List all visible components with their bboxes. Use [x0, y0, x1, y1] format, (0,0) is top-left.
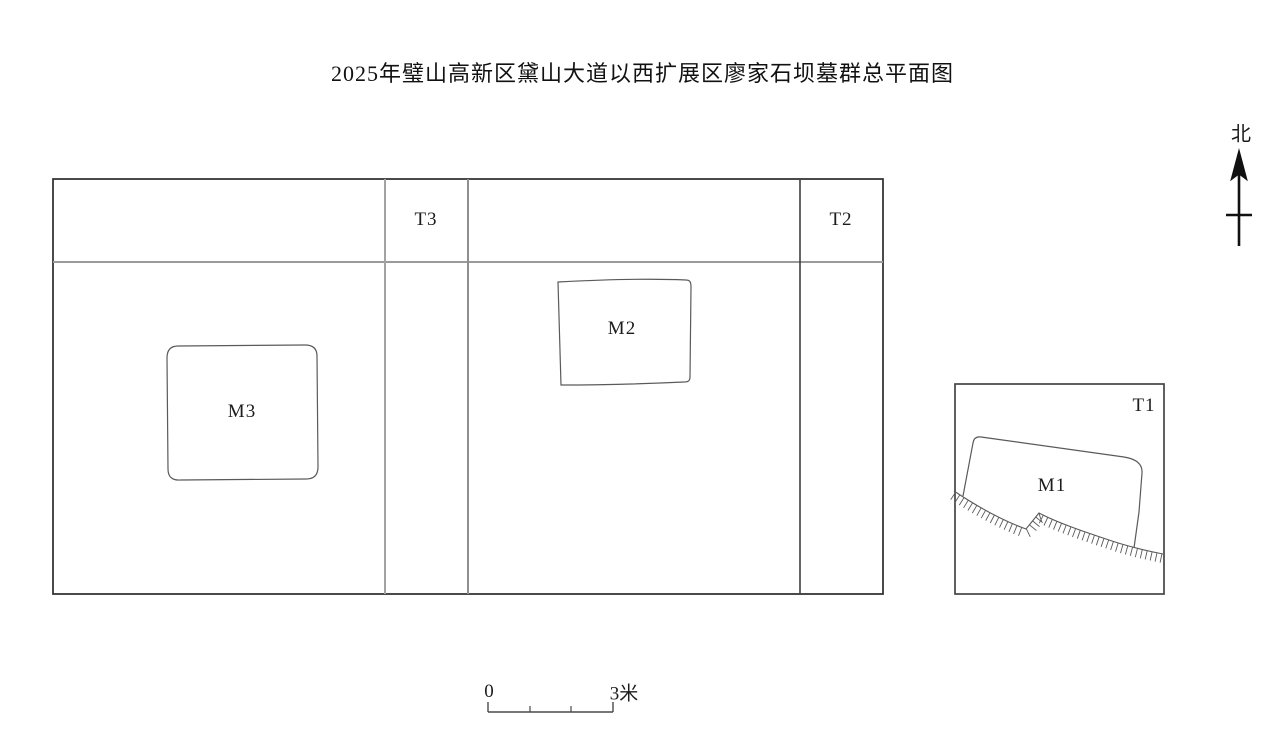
scarp-hachure-tick	[1150, 552, 1152, 561]
scarp-line	[954, 491, 1163, 554]
tomb-m3-label: M3	[228, 401, 256, 423]
scarp-hachure-tick	[1004, 522, 1008, 530]
tomb-m2-label: M2	[608, 318, 636, 340]
scarp-hachure-tick	[1155, 553, 1157, 562]
scarp-hachure-tick	[1073, 529, 1076, 538]
scarp-hachure-tick	[1026, 529, 1030, 537]
scarp-hachure-tick	[1049, 519, 1053, 527]
north-arrow	[1226, 150, 1252, 246]
scarp-hachure-tick	[1044, 517, 1048, 525]
trench-t3-label: T3	[414, 209, 437, 231]
scarp-hachure-tick	[1140, 550, 1142, 559]
scarp-hachure-tick	[1009, 524, 1013, 532]
site-plan-page: 2025年璧山高新区黛山大道以西扩展区廖家石坝墓群总平面图 北 T3 T2 T1…	[0, 0, 1285, 741]
scarp-hachure-tick	[1145, 551, 1147, 560]
scarp-hachure-tick	[1101, 538, 1104, 547]
scarp-hachure-tick	[1014, 526, 1017, 534]
scarp-hachure-tick	[968, 503, 973, 511]
scarp-hachure-tick	[1077, 530, 1080, 539]
scale-zero-label: 0	[484, 681, 494, 703]
scarp-hachure-tick	[1111, 542, 1114, 551]
scarp-hachure-tick	[1116, 543, 1119, 552]
scarp-hachure-tick	[1029, 525, 1036, 531]
scarp-hachure-tick	[964, 500, 969, 508]
scarp-hachure-tick	[981, 510, 985, 518]
scarp-hachure-tick	[1058, 523, 1061, 531]
scarp-hachure-tick	[1096, 537, 1099, 546]
trench-t1-label: T1	[1132, 395, 1155, 417]
scale-bar	[488, 702, 613, 712]
north-label: 北	[1231, 118, 1251, 147]
scarp-hachure-tick	[1087, 534, 1090, 543]
scarp-hachure-tick	[1125, 546, 1127, 555]
scarp-hachure-tick	[986, 513, 990, 521]
scarp-hachure-tick	[1054, 521, 1057, 529]
scarp-hachure-tick	[1092, 535, 1095, 544]
scarp-hachure-tick	[1160, 554, 1162, 563]
trench-t2-label: T2	[829, 209, 852, 231]
scarp-hachure-tick	[1106, 540, 1109, 549]
scarp-hachure-tick	[1019, 527, 1022, 535]
scarp-hachure-tick	[977, 508, 981, 516]
tomb-m1-label: M1	[1038, 475, 1066, 497]
scarp-hachure-tick	[1033, 521, 1040, 527]
page-title: 2025年璧山高新区黛山大道以西扩展区廖家石坝墓群总平面图	[0, 56, 1285, 88]
scarp-hachure-tick	[972, 505, 977, 513]
scarp-hachure-tick	[1130, 547, 1132, 556]
scarp-hachure-tick	[1121, 544, 1124, 553]
scarp-hachure-tick	[1082, 532, 1085, 541]
scarp-hachure-tick	[959, 498, 964, 506]
scarp-hachure-tick	[1000, 519, 1004, 527]
site-plan-drawing	[0, 0, 1285, 741]
scale-length-label: 3米	[610, 679, 639, 706]
scarp-hachure-tick	[1068, 527, 1071, 535]
scarp-hachures	[951, 492, 1162, 562]
scarp-hachure-tick	[1135, 548, 1137, 557]
scarp-hachure-tick	[1063, 525, 1066, 533]
scarp-hachure-tick	[990, 515, 994, 523]
scarp-hachure-tick	[995, 517, 999, 525]
